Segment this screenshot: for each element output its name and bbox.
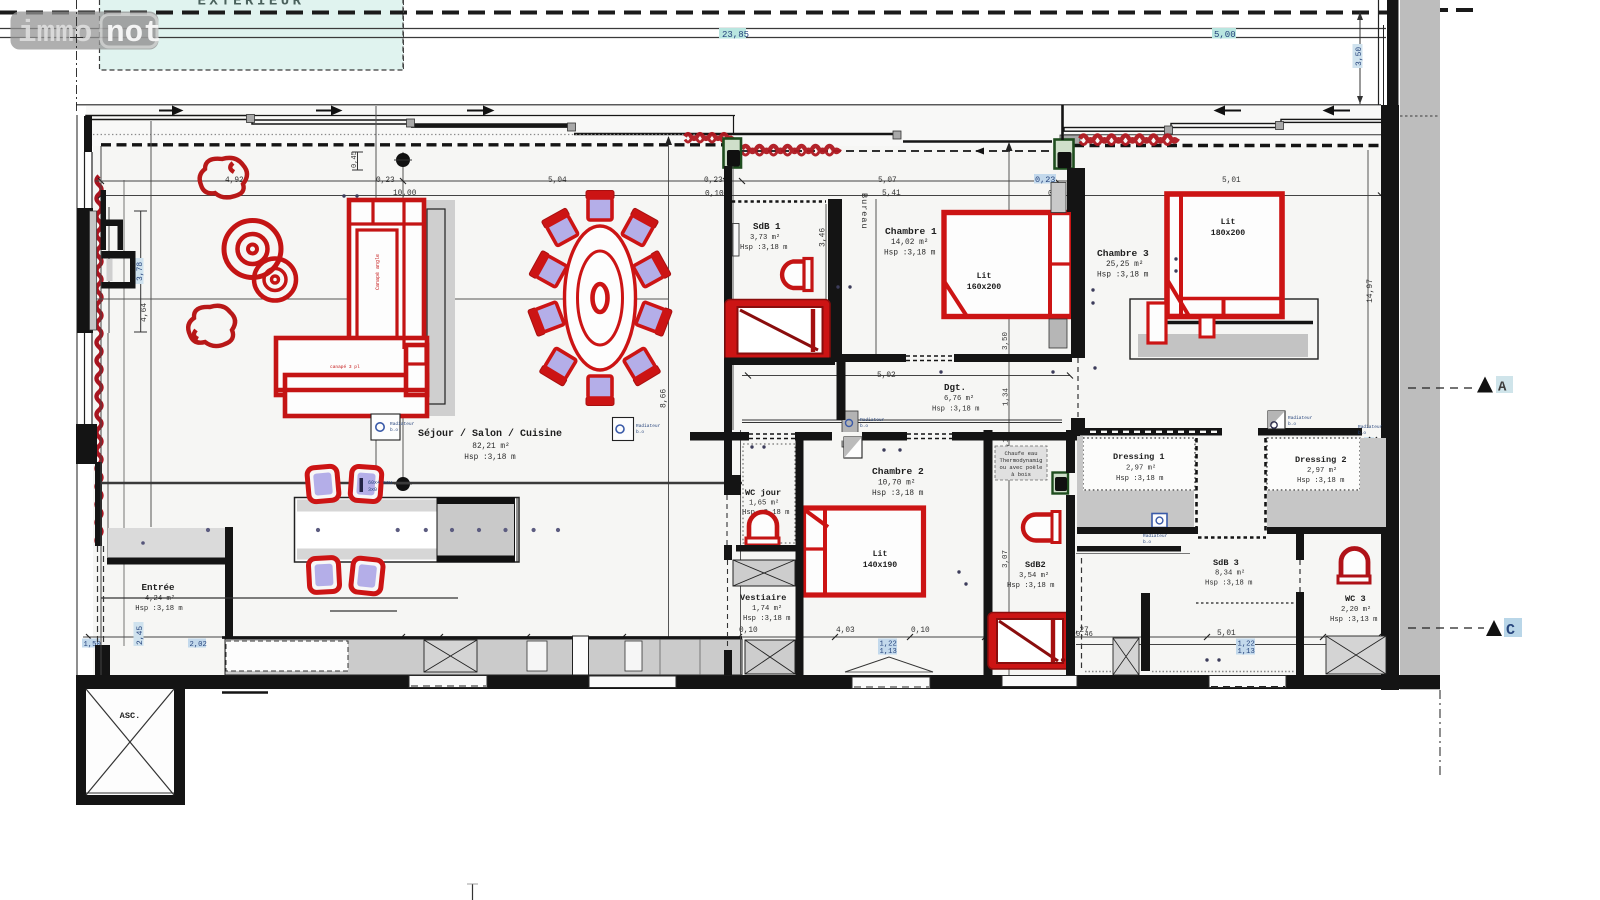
svg-text:Hsp :3,18 m: Hsp :3,18 m [1007,582,1054,590]
svg-text:14,02 m²: 14,02 m² [891,238,928,247]
svg-text:b.o: b.o [1288,421,1296,427]
svg-text:Dgt.: Dgt. [944,382,966,393]
svg-text:Dressing 2: Dressing 2 [1295,455,1347,465]
svg-text:Radiateur: Radiateur [390,421,415,427]
svg-text:Radiateur: Radiateur [1288,415,1313,421]
svg-text:1,74 m²: 1,74 m² [752,604,782,613]
svg-text:b.o: b.o [1358,430,1366,436]
svg-text:Radiateur: Radiateur [860,417,885,423]
svg-text:5,07: 5,07 [878,177,897,185]
svg-text:1,13: 1,13 [880,648,897,656]
svg-text:Hsp :3,18 m: Hsp :3,18 m [740,244,787,252]
svg-text:2,20 m²: 2,20 m² [1341,605,1371,614]
svg-text:0,10: 0,10 [739,627,758,635]
svg-text:140x190: 140x190 [863,561,897,570]
svg-text:Séjour / Salon / Cuisine: Séjour / Salon / Cuisine [418,428,562,440]
svg-text:Chambre 2: Chambre 2 [872,466,924,477]
svg-text:Hsp :3,18 m: Hsp :3,18 m [1297,477,1344,485]
svg-text:b.o: b.o [636,429,644,435]
svg-text:3x0: 3x0 [368,487,377,493]
svg-text:Dressing 1: Dressing 1 [1113,452,1165,462]
svg-text:Hsp :3,18 m: Hsp :3,18 m [1097,272,1149,280]
svg-text:5,02: 5,02 [877,372,896,380]
svg-text:immo: immo [18,16,92,51]
svg-text:Chambre 1: Chambre 1 [885,226,937,237]
svg-text:Hsp :3,18 m: Hsp :3,18 m [464,454,516,462]
svg-text:SdB 1: SdB 1 [753,221,781,232]
svg-text:b.o: b.o [390,427,398,433]
svg-text:23,85: 23,85 [722,30,749,40]
svg-text:8,34 m²: 8,34 m² [1215,569,1245,578]
svg-text:Thermodynamig: Thermodynamig [1000,457,1043,464]
svg-text:1,34: 1,34 [1003,387,1011,406]
svg-text:25,25 m²: 25,25 m² [1106,260,1143,269]
svg-text:WC jour: WC jour [745,488,781,498]
svg-text:WC 3: WC 3 [1345,594,1366,604]
svg-text:Radiateur: Radiateur [636,423,661,429]
svg-text:Hsp :3,18 m: Hsp :3,18 m [1205,580,1252,588]
svg-text:6,76 m²: 6,76 m² [944,394,974,403]
svg-text:2,97 m²: 2,97 m² [1307,466,1337,475]
svg-text:Hsp :3,18 m: Hsp :3,18 m [1116,475,1163,483]
svg-text:b.o: b.o [1143,539,1151,545]
svg-text:Lit: Lit [977,271,992,281]
svg-text:Canapé angle: Canapé angle [375,254,381,290]
svg-text:ou avec poèle: ou avec poèle [1000,464,1043,471]
svg-text:Hsp :3,18 m: Hsp :3,18 m [884,250,936,258]
svg-text:canapé 3 pl: canapé 3 pl [330,364,360,370]
svg-text:160x200: 160x200 [967,283,1001,292]
svg-text:0,23: 0,23 [376,177,395,185]
svg-text:not: not [106,16,162,51]
svg-text:60x4 eau: 60x4 eau [368,480,392,486]
svg-text:Lit: Lit [1221,217,1236,227]
svg-text:180x200: 180x200 [1211,229,1245,238]
svg-text:3,46: 3,46 [819,228,828,247]
svg-text:Entrée: Entrée [141,582,175,593]
svg-text:Vestiaire: Vestiaire [740,593,786,603]
svg-text:3,50: 3,50 [1355,47,1364,66]
svg-text:3,73 m²: 3,73 m² [750,233,780,242]
svg-text:C: C [1506,622,1515,639]
svg-text:Chaufe eau: Chaufe eau [1004,450,1037,457]
svg-text:2,97 m²: 2,97 m² [1126,464,1156,473]
svg-text:EXTERIEUR: EXTERIEUR [197,0,304,10]
svg-text:0,45: 0,45 [351,151,359,168]
svg-text:SdB 3: SdB 3 [1213,558,1239,568]
svg-text:4,64: 4,64 [140,303,149,322]
svg-text:SdB2: SdB2 [1025,560,1046,570]
svg-text:5,41: 5,41 [882,190,901,198]
svg-text:Hsp :3,18 m: Hsp :3,18 m [135,605,182,613]
svg-text:0,46: 0,46 [1076,631,1093,639]
svg-text:5,01: 5,01 [1217,630,1236,638]
svg-text:Hsp :3,13 m: Hsp :3,13 m [1330,616,1377,624]
svg-text:4,03: 4,03 [836,627,855,635]
svg-text:5,04: 5,04 [548,177,567,185]
svg-text:82,21 m²: 82,21 m² [472,442,509,451]
svg-text:Hsp :3,18 m: Hsp :3,18 m [932,406,979,414]
svg-text:3,54 m²: 3,54 m² [1019,571,1049,580]
svg-text:à bois: à bois [1011,471,1031,478]
svg-text:14,97: 14,97 [1366,279,1375,303]
svg-text:Lit: Lit [873,549,888,559]
svg-text:3,07: 3,07 [1002,550,1010,568]
svg-text:Bureau: Bureau [859,193,869,230]
svg-text:Hsp :3,18 m: Hsp :3,18 m [872,490,924,498]
svg-text:Chambre 3: Chambre 3 [1097,248,1149,259]
svg-text:2,45: 2,45 [136,626,145,645]
svg-text:b.o: b.o [860,423,868,429]
svg-text:5,01: 5,01 [1222,177,1241,185]
svg-text:10,00: 10,00 [393,190,417,198]
svg-text:10,70 m²: 10,70 m² [878,479,915,488]
svg-text:0,10: 0,10 [911,627,930,635]
svg-text:8,66: 8,66 [660,389,669,408]
svg-text:Hsp :3,18 m: Hsp :3,18 m [743,615,790,623]
svg-text:1,13: 1,13 [1238,648,1255,656]
svg-text:2,02: 2,02 [190,641,207,649]
svg-text:0,23: 0,23 [704,177,723,185]
svg-text:ASC.: ASC. [120,711,141,721]
svg-text:5,00: 5,00 [1214,30,1236,40]
svg-text:A: A [1498,380,1507,396]
svg-text:3,78: 3,78 [136,262,145,281]
svg-text:0,10: 0,10 [705,191,724,199]
svg-text:3,50: 3,50 [1002,331,1010,350]
svg-text:Radiateur: Radiateur [1358,424,1383,430]
svg-text:1,65 m²: 1,65 m² [749,499,779,508]
